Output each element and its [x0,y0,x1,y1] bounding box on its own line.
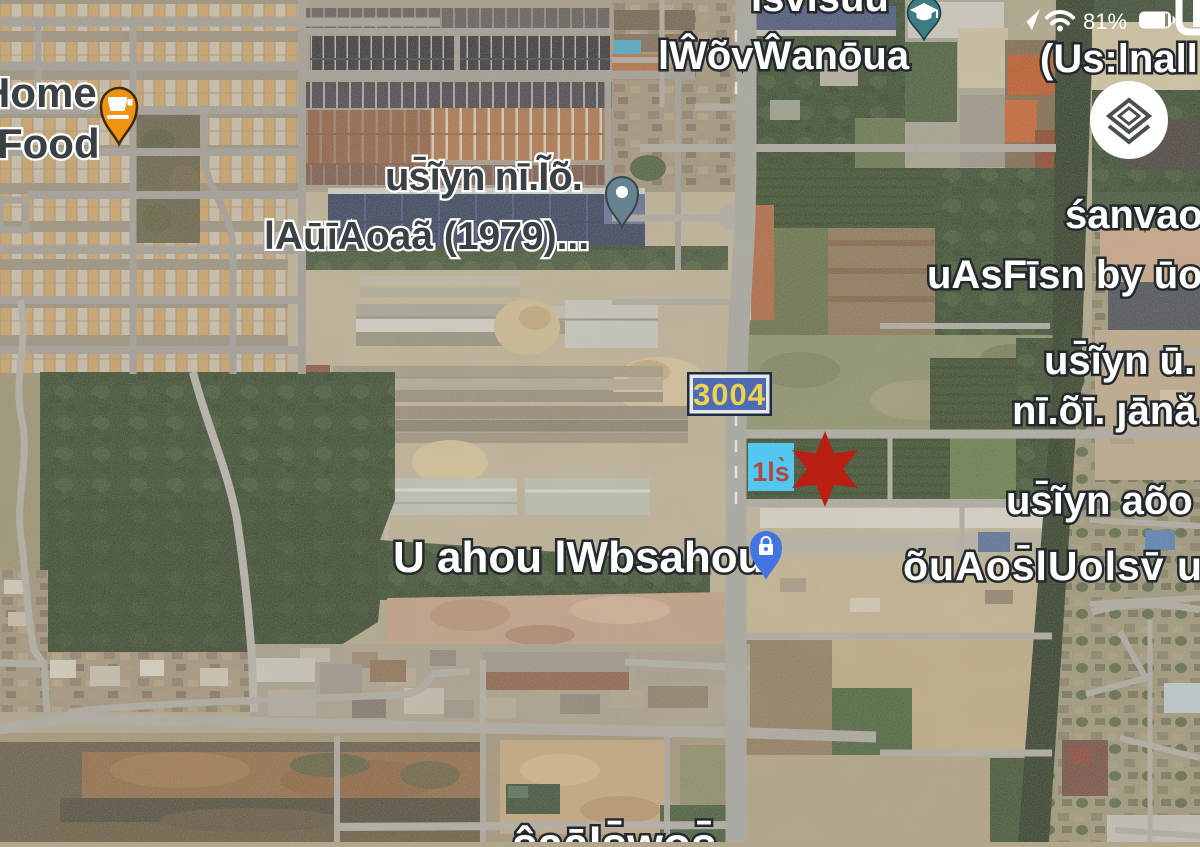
svg-text:(Us:lnall: (Us:lnall [1040,37,1198,81]
svg-text:lŴõvŴanōua: lŴõvŴanōua [658,32,910,78]
svg-text:81%: 81% [1083,9,1127,34]
svg-text:ŝaāls̄wos̄: ŝaāls̄wos̄ [512,818,717,842]
svg-text:lAūīAoaã (1979)...: lAūīAoaã (1979)... [264,215,589,258]
svg-text:õuAos̄lUolsv̄ u: õuAos̄lUolsv̄ u [903,543,1200,589]
svg-text:us̄ĩyn nī.Ĩõ.: us̄ĩyn nī.Ĩõ. [385,153,582,199]
svg-text:us̄ĩyn ū.: us̄ĩyn ū. [1044,339,1195,383]
svg-text:nī.õī. ȷānă: nī.õī. ȷānă [1012,389,1197,433]
svg-text:1ls̀: 1ls̀ [752,456,790,487]
svg-text:Home: Home [0,69,97,116]
svg-text:U ahou lWbsahou: U ahou lWbsahou [393,533,765,582]
svg-text:uAsFīsn by ūo: uAsFīsn by ūo [927,253,1200,297]
svg-text:Ĩsvlsuu: Ĩsvlsuu [748,0,889,20]
svg-text:3004: 3004 [693,377,766,412]
svg-text:Food: Food [0,120,100,167]
svg-text:us̄ĩyn aõo: us̄ĩyn aõo [1006,479,1193,523]
svg-text:śanvao: śanvao [1065,193,1200,237]
